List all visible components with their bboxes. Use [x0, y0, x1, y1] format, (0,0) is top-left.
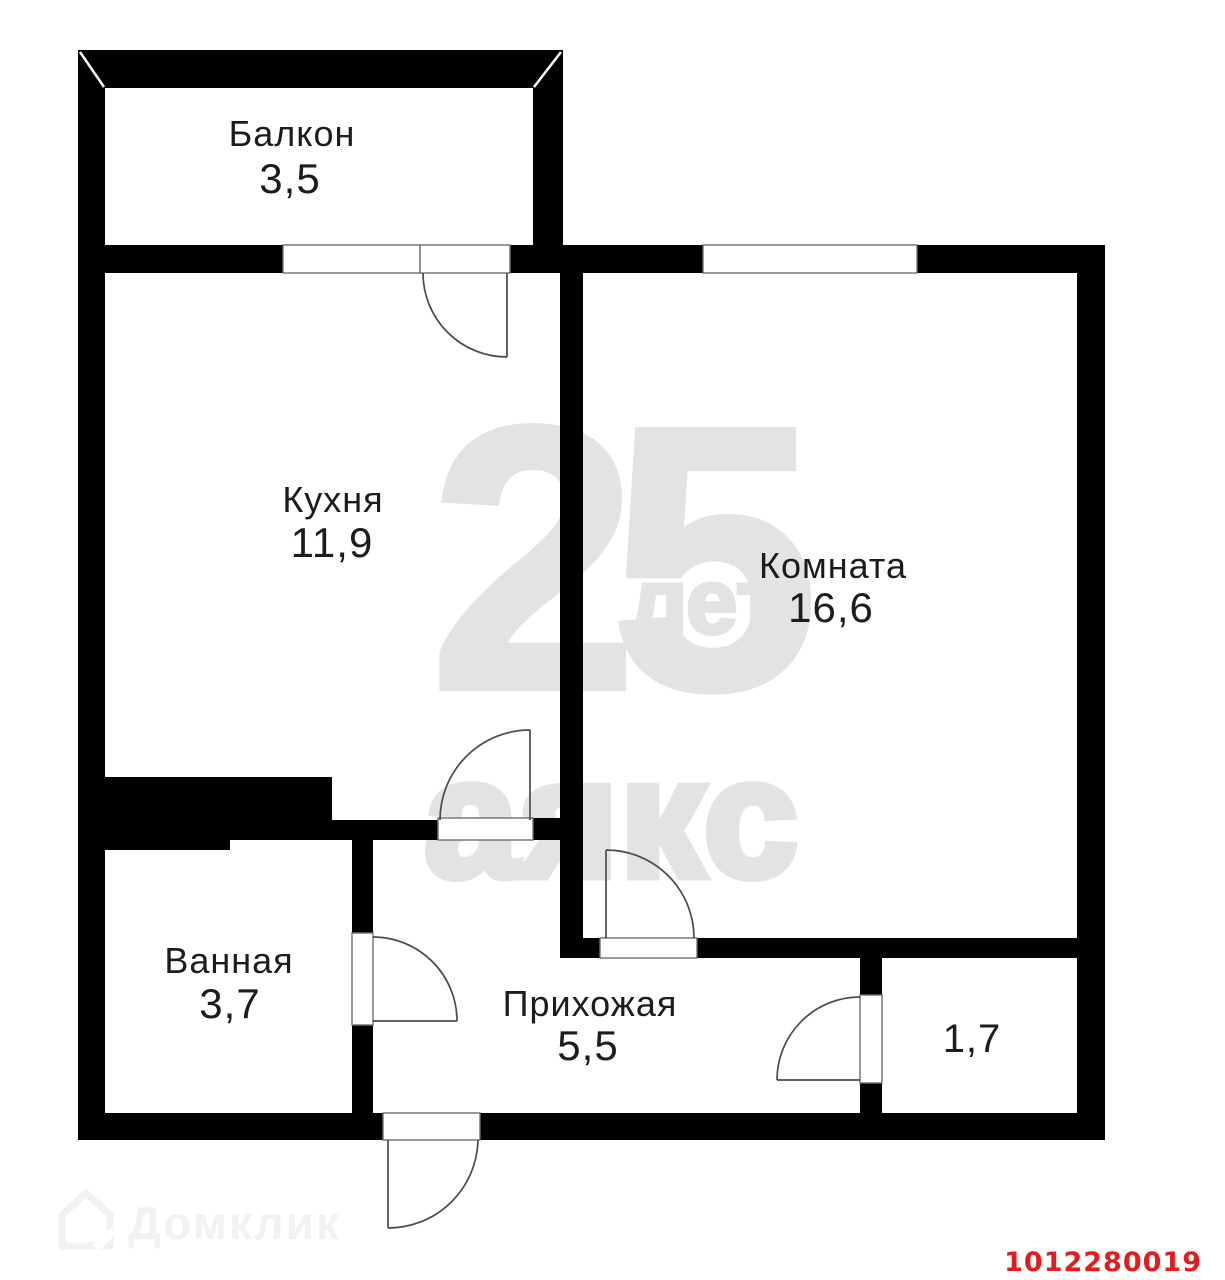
domclick-text: Домклик	[128, 1197, 341, 1249]
label-room-name: Комната	[759, 545, 907, 586]
wall-bath-hall-divider-lower	[352, 1025, 373, 1113]
balcony-door-opening	[420, 245, 510, 273]
label-bathroom-area: 3,7	[199, 980, 260, 1027]
wall-room-bottom-west	[583, 938, 600, 958]
wall-balcony-top	[78, 50, 563, 88]
wall-bottom-west	[78, 1113, 383, 1140]
bathroom-door-arc	[373, 937, 457, 1021]
label-kitchen-area: 11,9	[291, 519, 374, 566]
label-hallway-area: 5,5	[557, 1022, 618, 1069]
label-kitchen-name: Кухня	[282, 479, 383, 520]
domclick-watermark: Домклик	[62, 1193, 341, 1249]
wall-room-bottom-east	[697, 938, 1105, 958]
balcony-window	[283, 245, 420, 273]
floor-plan-canvas: 25 лет аякс	[0, 0, 1225, 1280]
bathroom-door-opening	[352, 933, 373, 1025]
entry-door-opening	[383, 1113, 480, 1140]
label-bathroom-name: Ванная	[164, 940, 293, 981]
label-storage-area: 1,7	[943, 1017, 1002, 1061]
room-window	[703, 245, 917, 273]
wall-left	[78, 50, 105, 1140]
storage-door-arc	[777, 997, 860, 1080]
wall-right	[1077, 245, 1105, 1140]
wall-bathroom-top	[230, 820, 438, 840]
wall-storage-left-upper	[860, 958, 882, 995]
wall-top-middle	[510, 245, 703, 273]
wall-divider-kitchen-room	[560, 273, 583, 958]
wall-top-room-east	[917, 245, 1105, 273]
floor-plan-drawing: 25 лет аякс	[0, 0, 1225, 1280]
wall-kitchen-door-east	[533, 818, 583, 840]
wall-top-kitchen-west	[105, 245, 283, 273]
wall-bath-hall-divider-upper	[352, 840, 373, 933]
listing-id: 1012280019	[1004, 1247, 1202, 1278]
wall-bottom-east	[480, 1113, 1105, 1140]
label-balcony-name: Балкон	[229, 113, 356, 154]
wall-balcony-right	[533, 50, 563, 245]
kitchen-door-opening	[438, 818, 533, 840]
storage-door-opening	[860, 995, 882, 1083]
wall-bathroom-corner	[105, 822, 230, 850]
label-room-area: 16,6	[788, 584, 874, 631]
label-hallway-name: Прихожая	[503, 983, 678, 1024]
label-balcony-area: 3,5	[259, 155, 320, 202]
wall-kitchen-notch	[105, 777, 332, 822]
wall-storage-left-lower	[860, 1083, 882, 1113]
entry-door-arc	[388, 1140, 478, 1228]
balcony-door-arc	[423, 273, 507, 357]
room-door-opening	[600, 938, 697, 958]
